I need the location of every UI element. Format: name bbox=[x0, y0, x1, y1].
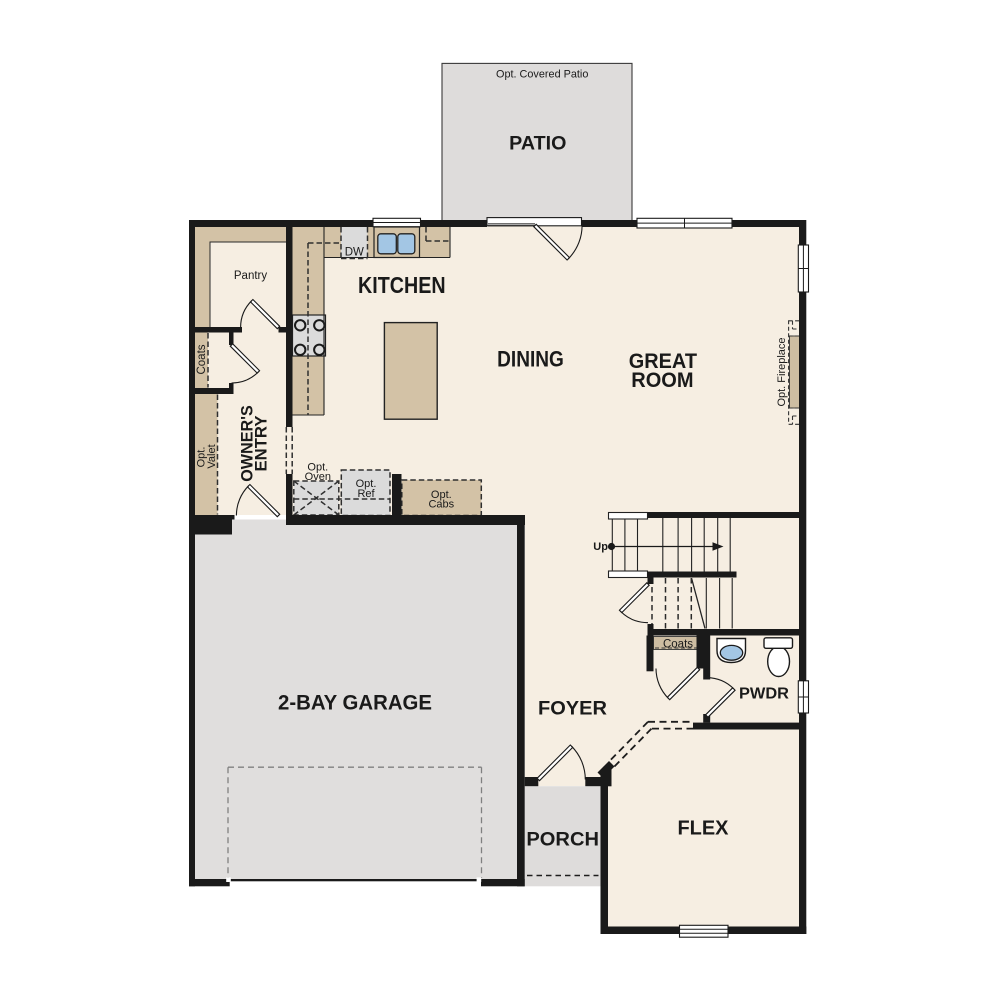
svg-text:KITCHEN: KITCHEN bbox=[358, 272, 446, 298]
svg-text:Cabs: Cabs bbox=[428, 499, 454, 511]
svg-text:DINING: DINING bbox=[497, 346, 564, 371]
svg-text:FOYER: FOYER bbox=[538, 697, 607, 719]
svg-text:Opt. Covered Patio: Opt. Covered Patio bbox=[496, 69, 588, 81]
svg-text:Opt. Fireplace: Opt. Fireplace bbox=[776, 337, 788, 406]
svg-text:2-BAY GARAGE: 2-BAY GARAGE bbox=[278, 690, 432, 714]
svg-text:PWDR: PWDR bbox=[739, 686, 789, 703]
svg-text:DW: DW bbox=[345, 246, 364, 258]
svg-text:ENTRY: ENTRY bbox=[253, 416, 271, 472]
svg-text:Up: Up bbox=[593, 541, 608, 553]
svg-text:Pantry: Pantry bbox=[234, 270, 267, 282]
svg-text:FLEX: FLEX bbox=[678, 818, 730, 840]
svg-text:PORCH: PORCH bbox=[526, 829, 599, 851]
svg-text:Ref: Ref bbox=[357, 488, 375, 500]
svg-text:Valet: Valet bbox=[206, 444, 218, 468]
svg-text:Coats: Coats bbox=[663, 638, 693, 650]
svg-text:ROOM: ROOM bbox=[631, 368, 693, 392]
svg-text:Coats: Coats bbox=[196, 344, 208, 374]
svg-text:PATIO: PATIO bbox=[509, 134, 566, 155]
svg-text:Oven: Oven bbox=[305, 471, 331, 483]
